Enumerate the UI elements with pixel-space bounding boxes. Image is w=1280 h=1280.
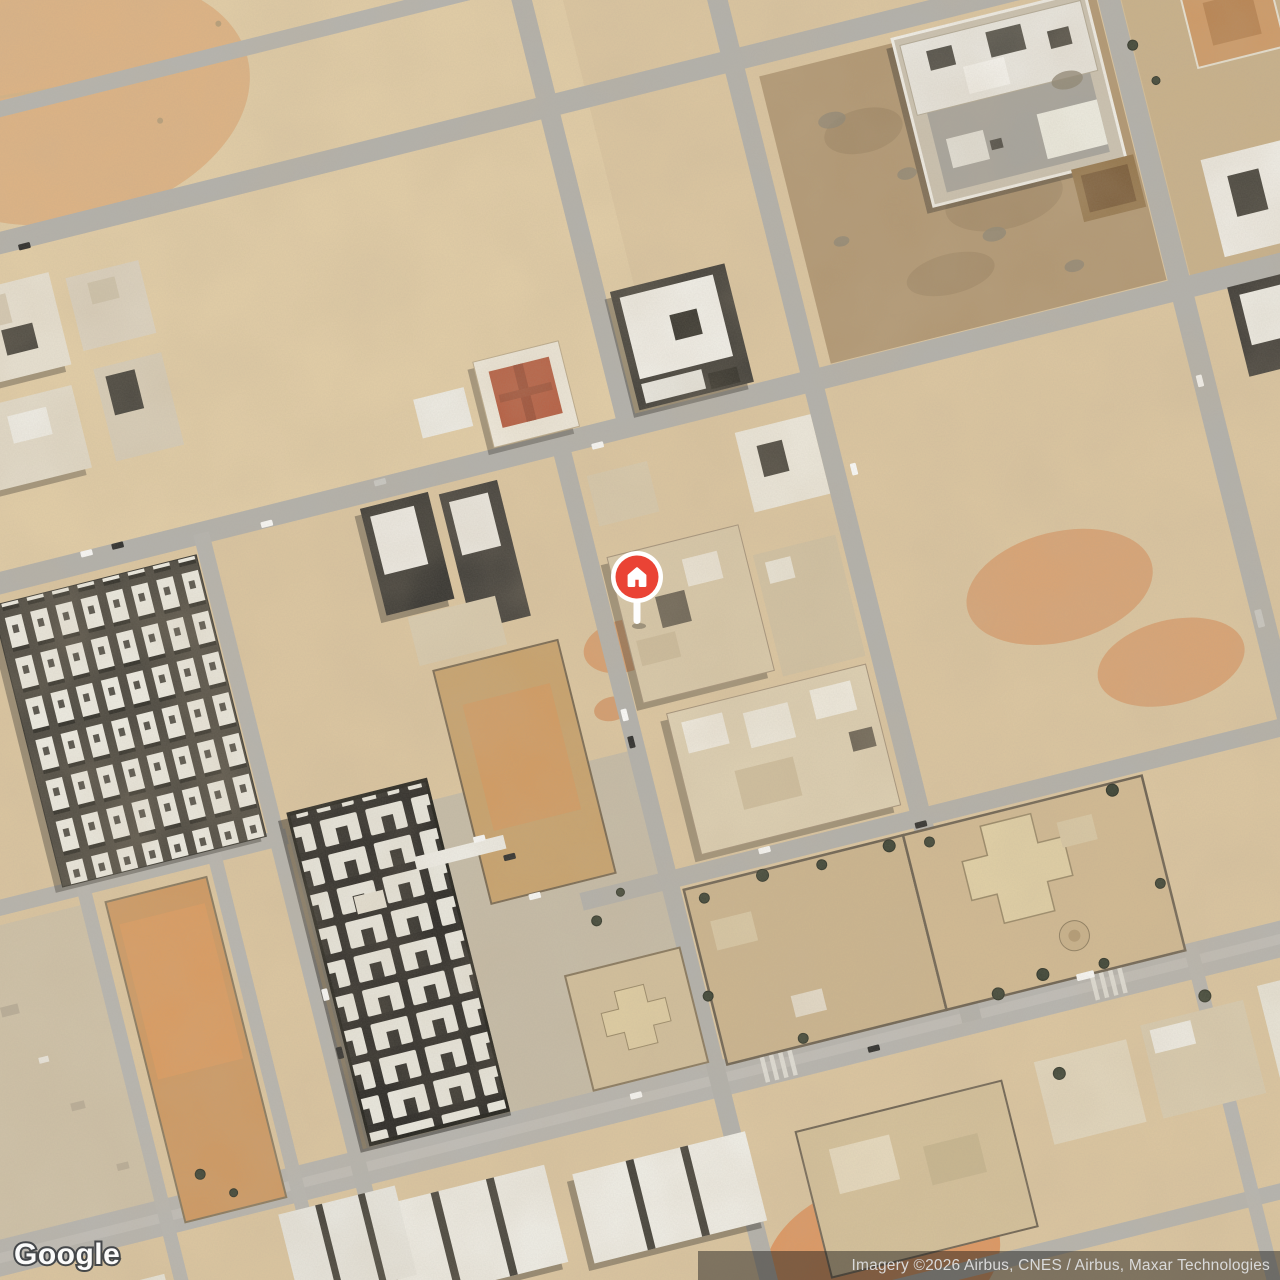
- satellite-canvas[interactable]: [0, 0, 1280, 1280]
- satellite-imagery: [0, 0, 1280, 1280]
- google-logo-text: Google: [14, 1238, 120, 1271]
- map-viewport[interactable]: Google Imagery ©2026 Airbus, CNES / Airb…: [0, 0, 1280, 1280]
- attribution-bar: Imagery ©2026 Airbus, CNES / Airbus, Max…: [698, 1251, 1280, 1280]
- google-logo[interactable]: Google: [12, 1234, 142, 1274]
- marker-shadow: [632, 623, 646, 629]
- attribution-text: Imagery ©2026 Airbus, CNES / Airbus, Max…: [852, 1257, 1270, 1275]
